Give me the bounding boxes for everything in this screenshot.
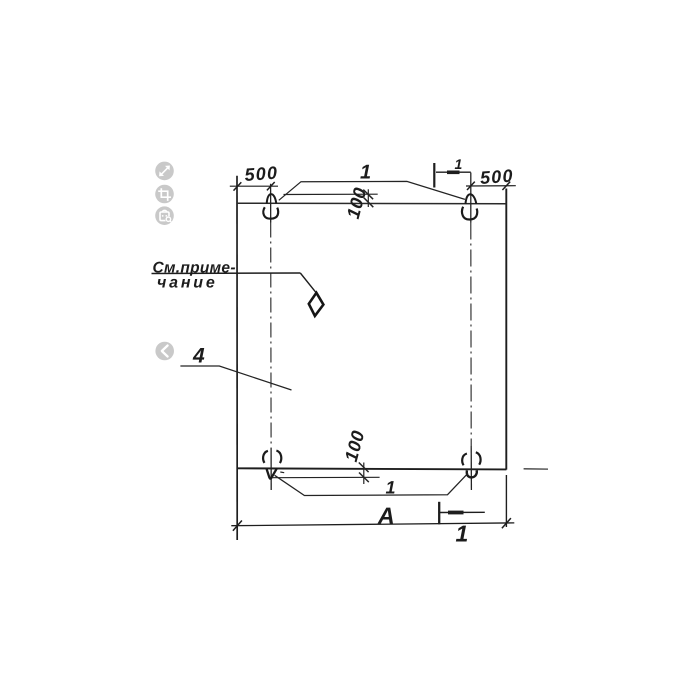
svg-text:100: 100 bbox=[341, 428, 368, 464]
svg-text:чание: чание bbox=[157, 275, 218, 292]
svg-text:500: 500 bbox=[244, 163, 279, 185]
svg-text:4: 4 bbox=[192, 345, 205, 368]
svg-text:500: 500 bbox=[479, 166, 514, 188]
svg-text:1: 1 bbox=[360, 161, 371, 183]
svg-text:100: 100 bbox=[343, 185, 370, 221]
svg-text:1: 1 bbox=[386, 478, 396, 498]
svg-text:1: 1 bbox=[455, 156, 463, 172]
svg-text:1: 1 bbox=[456, 521, 469, 547]
svg-text:А: А bbox=[377, 503, 395, 529]
